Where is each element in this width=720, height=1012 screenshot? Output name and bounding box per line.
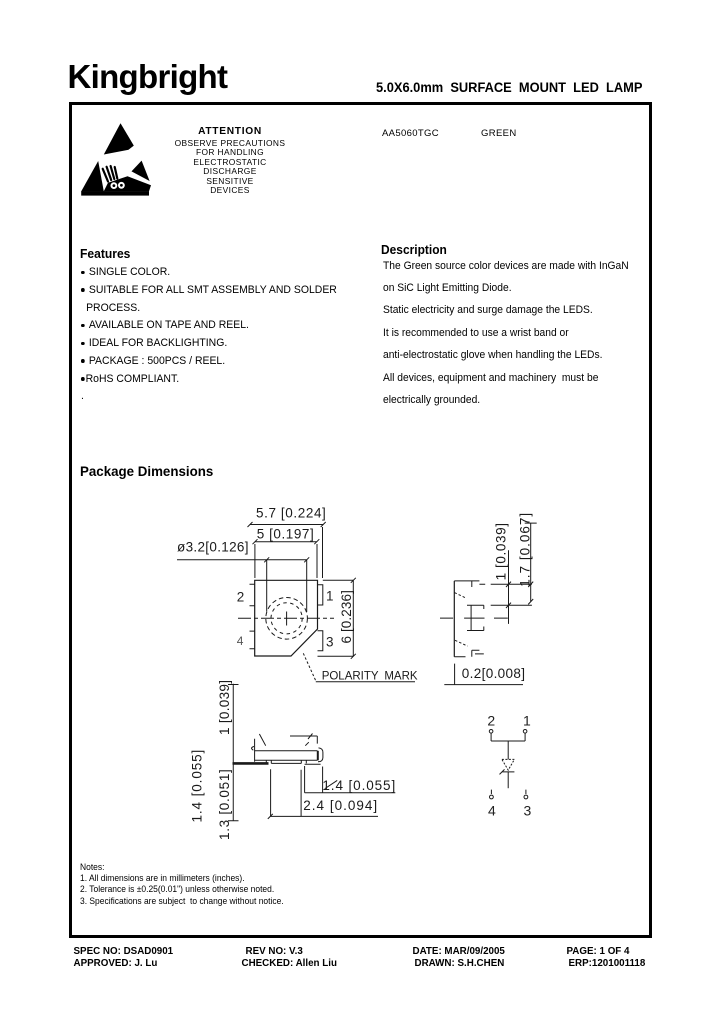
svg-text:5.7 [0.224]: 5.7 [0.224] xyxy=(256,506,326,521)
svg-text:5 [0.197]: 5 [0.197] xyxy=(257,527,315,542)
svg-text:2.4 [0.094]: 2.4 [0.094] xyxy=(303,798,378,813)
svg-text:1.3 [0.051]: 1.3 [0.051] xyxy=(217,768,232,840)
svg-text:1 [0.039]: 1 [0.039] xyxy=(494,522,509,580)
svg-text:6 [0.236]: 6 [0.236] xyxy=(339,590,354,643)
svg-text:2: 2 xyxy=(237,590,245,605)
svg-text:1.7 [0.067]: 1.7 [0.067] xyxy=(518,512,533,587)
svg-text:3: 3 xyxy=(326,635,334,650)
svg-text:4: 4 xyxy=(488,802,496,818)
svg-text:1: 1 xyxy=(326,589,334,604)
svg-text:2: 2 xyxy=(487,713,495,729)
svg-text:1: 1 xyxy=(523,713,531,729)
svg-text:3: 3 xyxy=(524,802,532,818)
svg-text:4: 4 xyxy=(237,634,244,648)
svg-text:POLARITY MARK: POLARITY MARK xyxy=(322,670,418,682)
svg-text:1.4 [0.055]: 1.4 [0.055] xyxy=(322,778,396,793)
svg-text:0.2[0.008]: 0.2[0.008] xyxy=(462,666,526,681)
svg-text:ø3.2[0.126]: ø3.2[0.126] xyxy=(177,540,249,555)
svg-text:1.4 [0.055]: 1.4 [0.055] xyxy=(190,749,205,823)
svg-text:1 [0.039]: 1 [0.039] xyxy=(217,680,232,735)
